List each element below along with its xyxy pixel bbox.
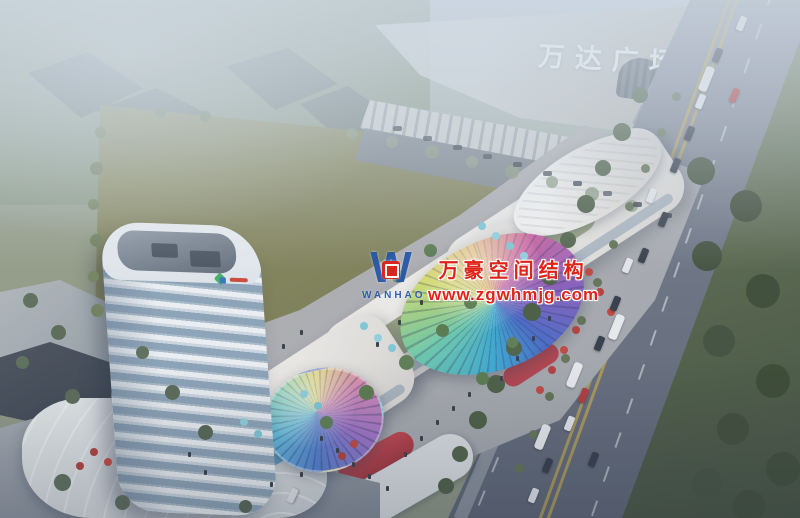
roof-equipment <box>151 243 178 258</box>
watermark-logo: W WANHAO <box>362 248 420 310</box>
watermark-badge-icon <box>382 261 400 279</box>
tower-brand-logo <box>215 273 250 286</box>
logo-blue-mark <box>220 277 226 283</box>
watermark: W WANHAO 万豪空间结构 www.zgwhmjg.com <box>362 248 599 310</box>
watermark-wordmark: WANHAO <box>362 290 420 301</box>
watermark-website: www.zgwhmjg.com <box>428 285 599 305</box>
roof-equipment <box>190 250 221 267</box>
logo-red-mark <box>230 278 248 283</box>
pedestrians <box>0 0 3 5</box>
watermark-company: 万豪空间结构 <box>439 254 589 283</box>
watermark-text: 万豪空间结构 www.zgwhmjg.com <box>428 254 599 305</box>
aerial-rendering: 万达广场 <box>0 0 800 518</box>
tower <box>100 221 279 516</box>
tower-roof-deck <box>116 230 237 274</box>
tower-crown <box>100 221 263 284</box>
